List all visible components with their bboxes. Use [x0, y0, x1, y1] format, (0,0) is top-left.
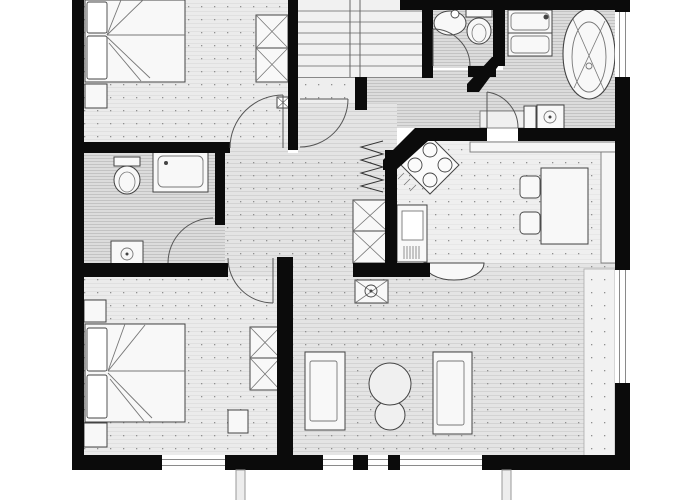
floor-plan-svg — [0, 0, 698, 500]
hall-threshold — [230, 142, 288, 153]
wall-right-mid — [615, 77, 630, 270]
kitchen-counter-right — [601, 152, 616, 263]
ensuite-shower-drain — [164, 161, 168, 165]
wall-top — [400, 0, 630, 10]
living-strip-dots — [584, 269, 615, 458]
wall-kitchen-bottom — [353, 263, 430, 277]
wall-ensuite-right — [215, 142, 225, 225]
wall-landing-stub — [355, 77, 367, 110]
bed2-nightstand — [84, 423, 107, 447]
bed1-pillow — [87, 2, 107, 33]
floor-grate-dot — [370, 290, 373, 293]
wardrobe2 — [250, 327, 280, 390]
wall-ensuite-bottom — [83, 263, 228, 277]
bath-vanity-tap — [544, 15, 549, 20]
ensuite-toilet-bowl — [114, 166, 140, 194]
wall-bottom-c — [482, 455, 630, 470]
wall-stairs-wc — [422, 0, 433, 78]
wall-bedroom1-bottom — [83, 142, 230, 153]
wall-kitchen-top-b — [518, 128, 617, 141]
wc-toilet-bowl — [467, 18, 491, 44]
wall-bottom-a — [72, 455, 162, 470]
wall-bottom-b — [225, 455, 323, 470]
bed2-nightstand — [84, 300, 106, 322]
coffee-table-large — [369, 363, 411, 405]
bath-counter — [524, 106, 536, 130]
sofa-right — [433, 352, 472, 434]
bed1-nightstand — [85, 84, 107, 108]
porch-post — [236, 470, 245, 500]
porch-post — [502, 470, 511, 500]
dining-chair — [520, 212, 540, 234]
window-living-bottom — [323, 455, 482, 470]
ensuite-shower — [153, 151, 208, 192]
side-table — [228, 410, 248, 433]
wall-bedroom2-right — [277, 257, 293, 460]
hall-wardrobe — [353, 200, 387, 263]
wc-sink-tap — [451, 10, 459, 18]
ensuite-toilet-tank — [114, 157, 140, 166]
window-living-right — [615, 270, 630, 383]
bed2-pillow — [87, 375, 107, 418]
wall-bedroom1-right — [288, 0, 298, 150]
dining-table — [541, 168, 588, 244]
window-bathroom — [615, 12, 630, 77]
dining-chair — [520, 176, 540, 198]
bed1-pillow — [87, 36, 107, 79]
bed2-pillow — [87, 328, 107, 371]
wc-sink — [434, 11, 466, 35]
wall-left — [72, 0, 84, 470]
window-bedroom2 — [162, 455, 225, 470]
wc-toilet-tank — [466, 9, 492, 17]
bath-washer-dot — [549, 116, 552, 119]
kitchen-sink — [402, 211, 423, 240]
ensuite-washer-dot — [126, 253, 129, 256]
wall-right-low — [615, 383, 630, 470]
wall-bottom-pier2 — [388, 455, 400, 470]
floor-plan — [0, 0, 698, 500]
bathtub — [563, 9, 615, 99]
wardrobe1 — [256, 15, 288, 82]
sofa-left — [305, 352, 345, 430]
wall-bottom-pier1 — [353, 455, 368, 470]
wall-kitchen-top-a — [417, 128, 487, 141]
kitchen-counter-top — [470, 142, 617, 152]
